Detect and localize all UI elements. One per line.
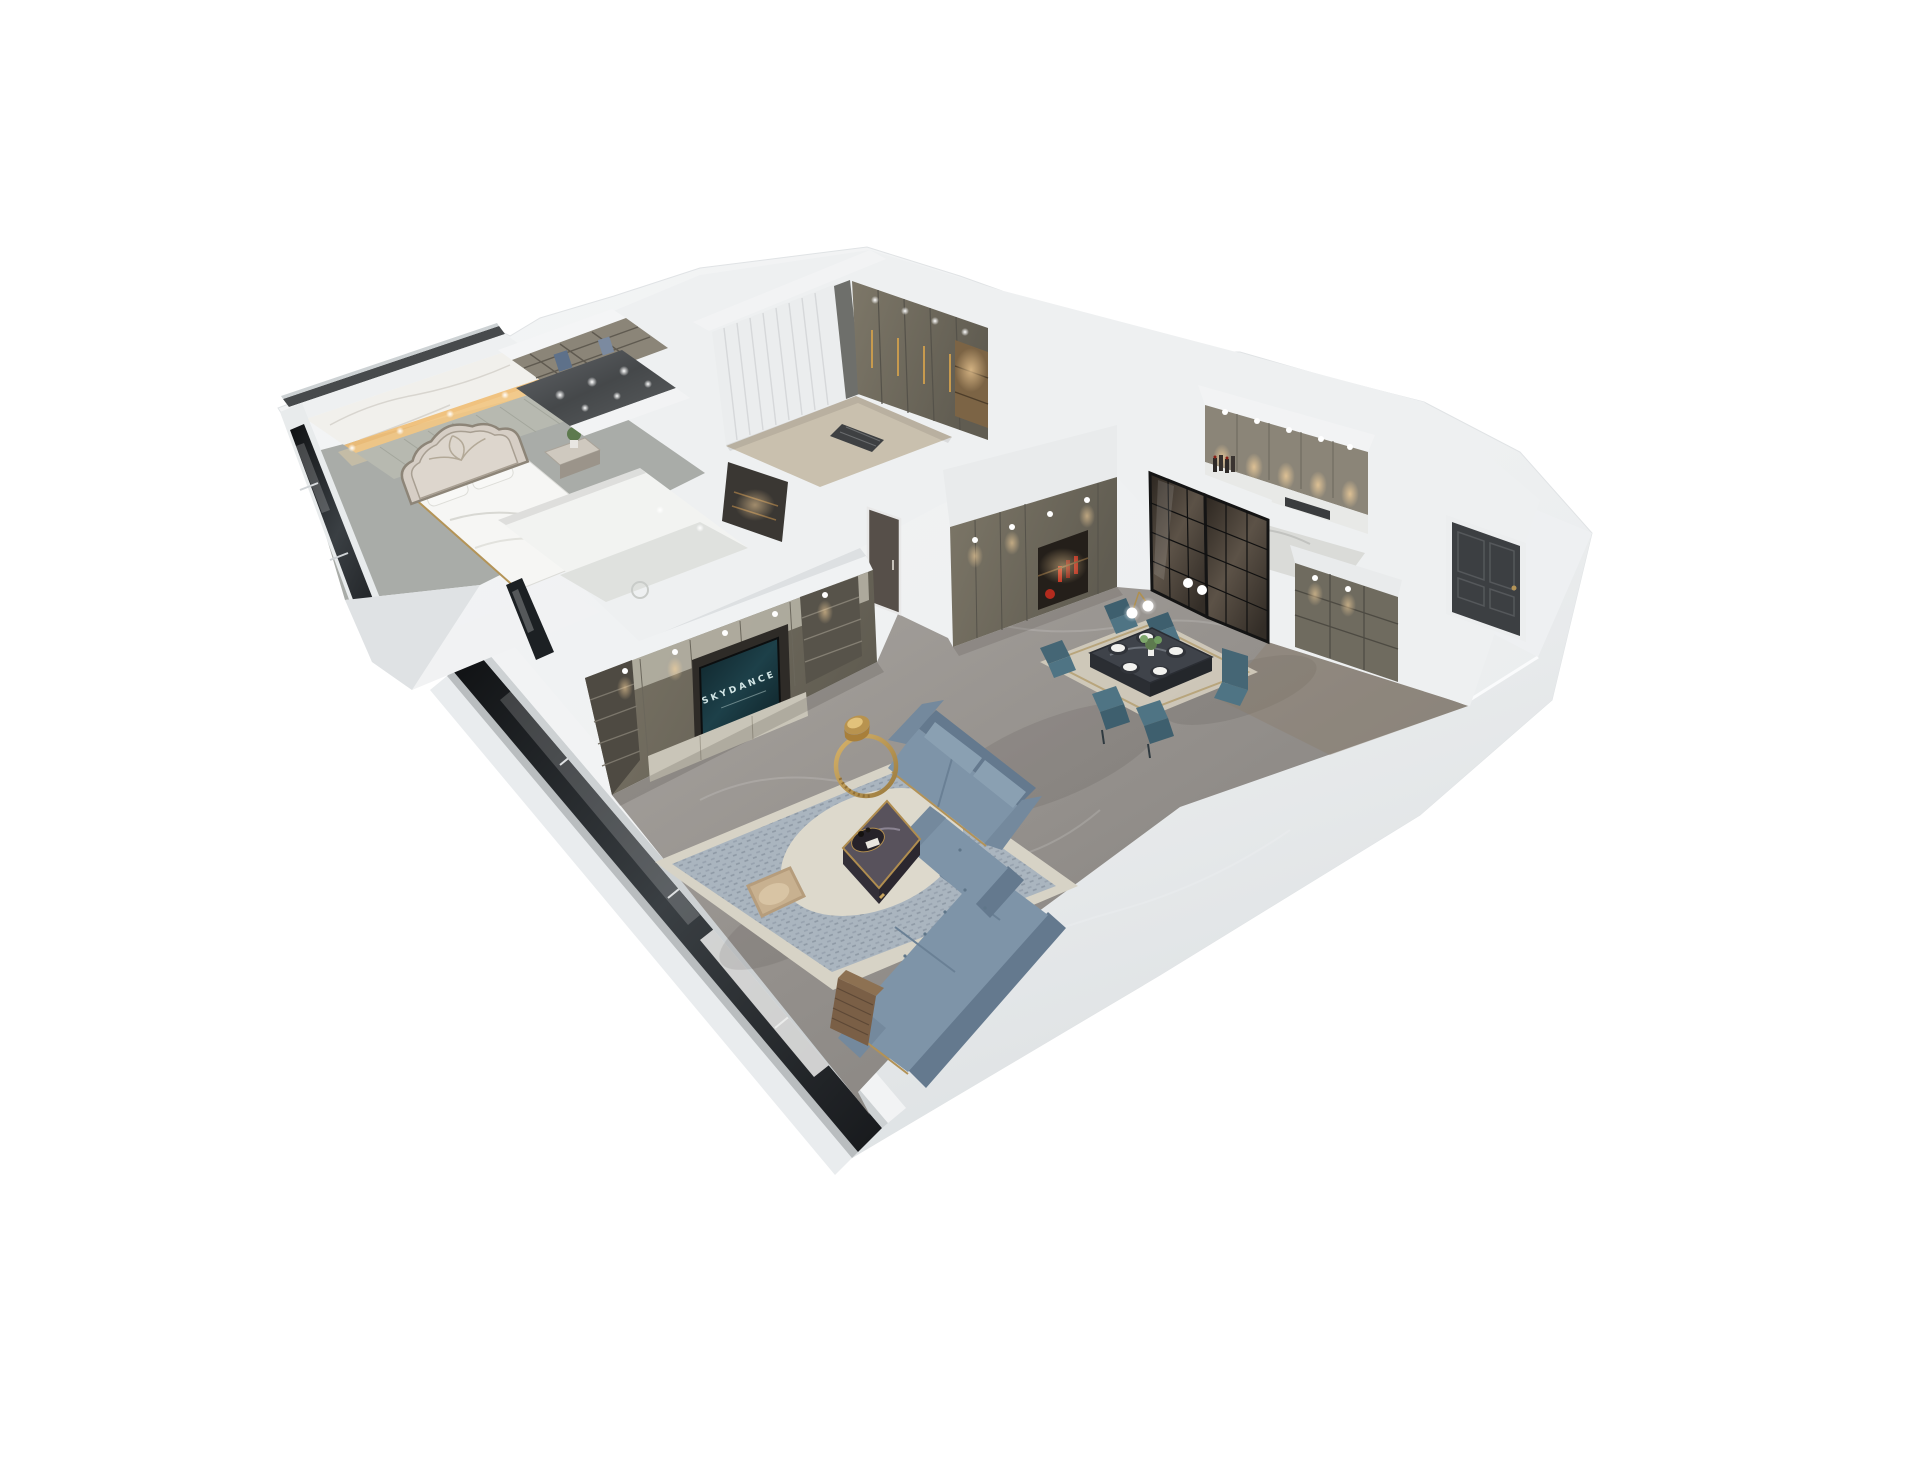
tray-bottle <box>866 828 871 833</box>
niche-glow <box>955 348 987 392</box>
niche-glow <box>1039 548 1087 584</box>
tray-bottle <box>858 831 864 837</box>
plant-vase <box>570 440 578 448</box>
glass-panel <box>1205 495 1268 642</box>
pendant-behind-glass <box>1183 578 1193 588</box>
apartment-svg: Master bedroom <box>0 0 1920 1484</box>
hall-doorway-glow <box>735 489 775 521</box>
floorplan-render: Master bedroom <box>0 0 1920 1484</box>
pendant-behind-glass <box>1197 585 1207 595</box>
entrance-door-knob <box>1512 586 1517 591</box>
